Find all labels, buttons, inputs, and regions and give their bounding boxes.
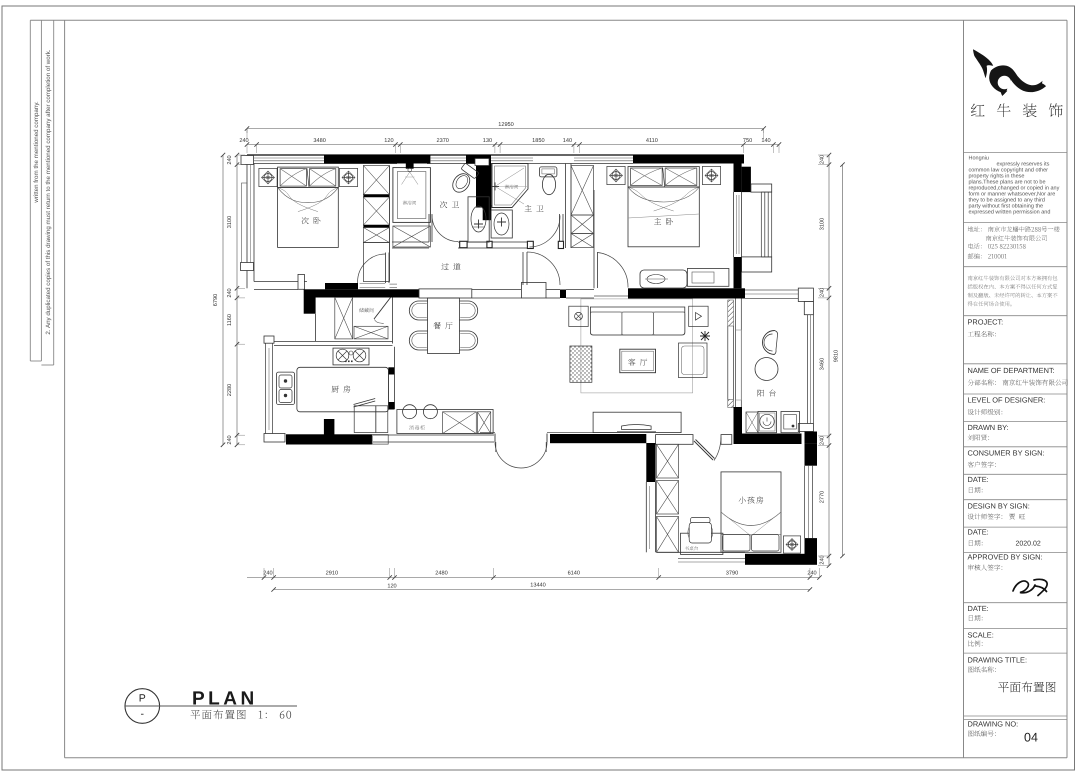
- svg-text:DATE:: DATE:: [968, 604, 989, 613]
- svg-text:PROJECT:: PROJECT:: [968, 318, 1004, 327]
- svg-text:240: 240: [227, 435, 233, 444]
- svg-text:240: 240: [820, 288, 826, 297]
- svg-text:SCALE:: SCALE:: [968, 631, 994, 640]
- svg-text:120: 120: [387, 584, 396, 590]
- svg-text:PLAN: PLAN: [192, 689, 258, 710]
- svg-text:2370: 2370: [436, 138, 448, 144]
- svg-text:240: 240: [263, 571, 272, 577]
- svg-text:NAME OF DEPARTMENT:: NAME OF DEPARTMENT:: [968, 366, 1055, 375]
- svg-text:-: -: [141, 708, 145, 720]
- svg-text:2. Any duplicated copies of th: 2. Any duplicated copies of this drawing…: [45, 49, 52, 334]
- svg-text:12950: 12950: [498, 122, 514, 128]
- svg-text:Hongniu: Hongniu: [969, 155, 990, 161]
- svg-text:DRAWING TITLE:: DRAWING TITLE:: [968, 656, 1028, 665]
- svg-text:9810: 9810: [834, 350, 840, 362]
- svg-text:written from the mentioned com: written from the mentioned company.: [33, 101, 40, 204]
- svg-text:240: 240: [820, 436, 826, 445]
- svg-text:2910: 2910: [326, 571, 338, 577]
- svg-text:750: 750: [743, 138, 752, 144]
- svg-text:140: 140: [563, 138, 572, 144]
- svg-text:240: 240: [227, 155, 233, 164]
- svg-text:DATE:: DATE:: [968, 528, 989, 537]
- svg-text:240: 240: [227, 288, 233, 297]
- svg-text:3100: 3100: [820, 218, 826, 230]
- svg-text:240: 240: [820, 555, 826, 564]
- svg-text:2280: 2280: [227, 384, 233, 396]
- svg-text:P: P: [139, 693, 146, 705]
- svg-text:expressed written permission a: expressed written permission and: [969, 209, 1051, 215]
- svg-text:CONSUMER BY SIGN:: CONSUMER BY SIGN:: [968, 449, 1045, 458]
- svg-text:DRAWN BY:: DRAWN BY:: [968, 423, 1009, 432]
- svg-text:DESIGN BY SIGN:: DESIGN BY SIGN:: [968, 502, 1030, 511]
- svg-text:1850: 1850: [532, 138, 544, 144]
- svg-text:DRAWING NO:: DRAWING NO:: [968, 720, 1019, 729]
- svg-text:3480: 3480: [313, 138, 325, 144]
- svg-text:6790: 6790: [213, 294, 219, 306]
- svg-text:140: 140: [761, 138, 770, 144]
- svg-text:240: 240: [807, 571, 816, 577]
- svg-text:2480: 2480: [435, 571, 447, 577]
- svg-text:04: 04: [1024, 731, 1038, 745]
- svg-text:LEVEL OF DESIGNER:: LEVEL OF DESIGNER:: [968, 396, 1046, 405]
- svg-text:DATE:: DATE:: [968, 475, 989, 484]
- svg-text:APPROVED BY SIGN:: APPROVED BY SIGN:: [968, 553, 1043, 562]
- svg-text:6140: 6140: [568, 571, 580, 577]
- svg-text:3460: 3460: [820, 358, 826, 370]
- svg-text:120: 120: [384, 138, 393, 144]
- svg-text:240: 240: [239, 138, 248, 144]
- svg-text:3790: 3790: [726, 571, 738, 577]
- svg-text:13440: 13440: [530, 583, 546, 589]
- svg-text:130: 130: [483, 138, 492, 144]
- svg-text:1160: 1160: [227, 314, 233, 326]
- svg-text:2770: 2770: [820, 491, 826, 503]
- svg-text:3100: 3100: [227, 216, 233, 228]
- svg-text:4110: 4110: [646, 138, 658, 144]
- svg-text:240: 240: [820, 155, 826, 164]
- svg-text:2020.02: 2020.02: [1016, 541, 1041, 548]
